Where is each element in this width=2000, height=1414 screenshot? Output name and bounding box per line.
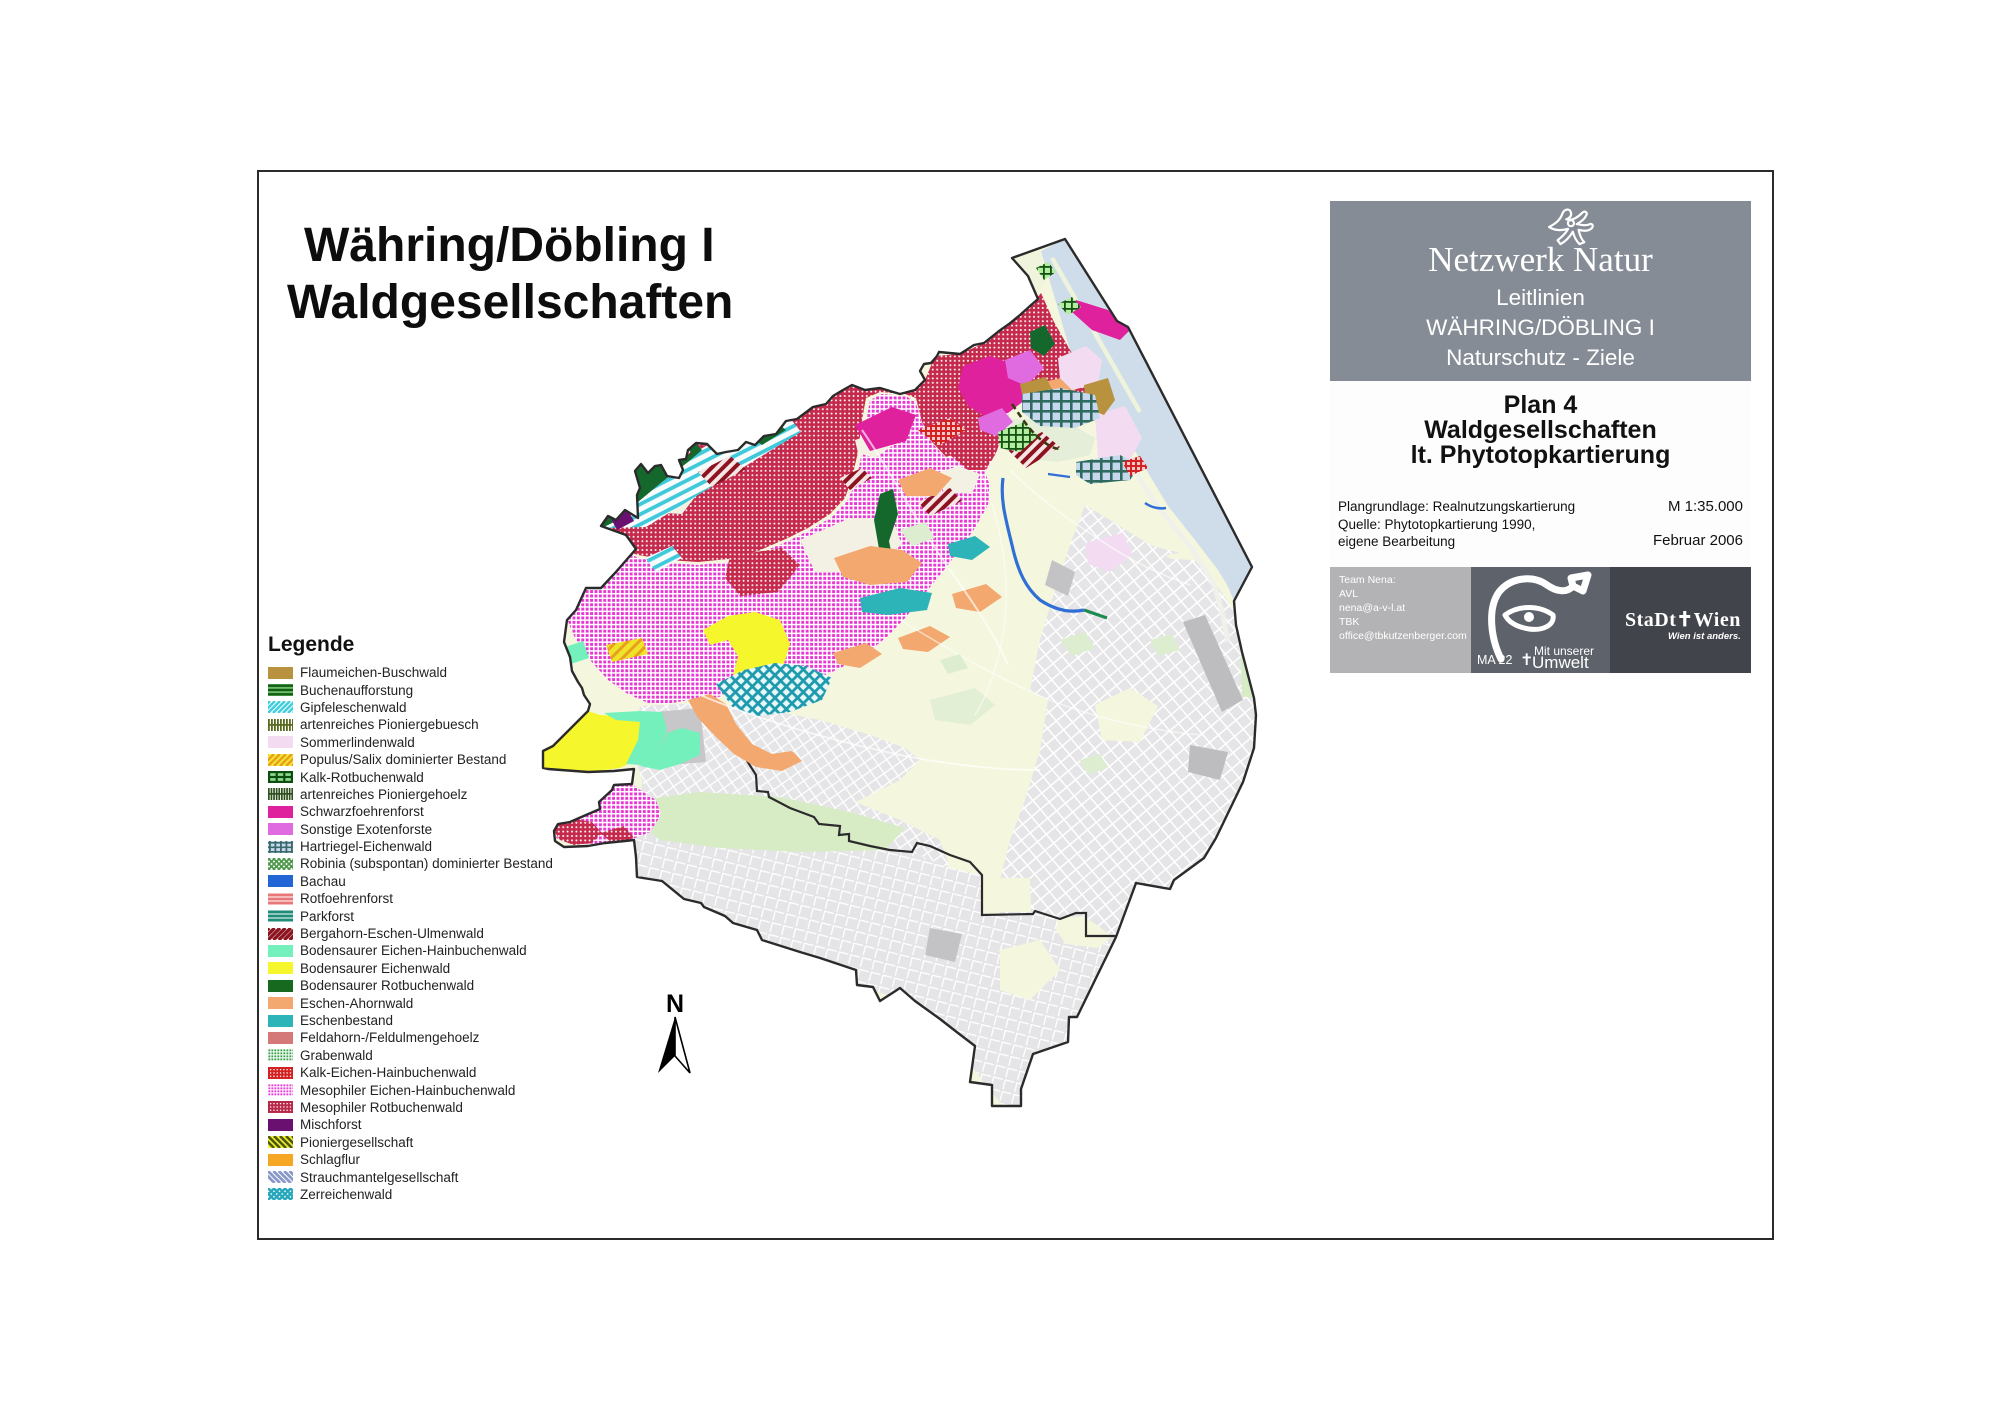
svg-text:N: N [666, 990, 684, 1018]
svg-text:MA 22: MA 22 [1477, 653, 1512, 667]
svg-text:Umwelt: Umwelt [1532, 653, 1589, 672]
